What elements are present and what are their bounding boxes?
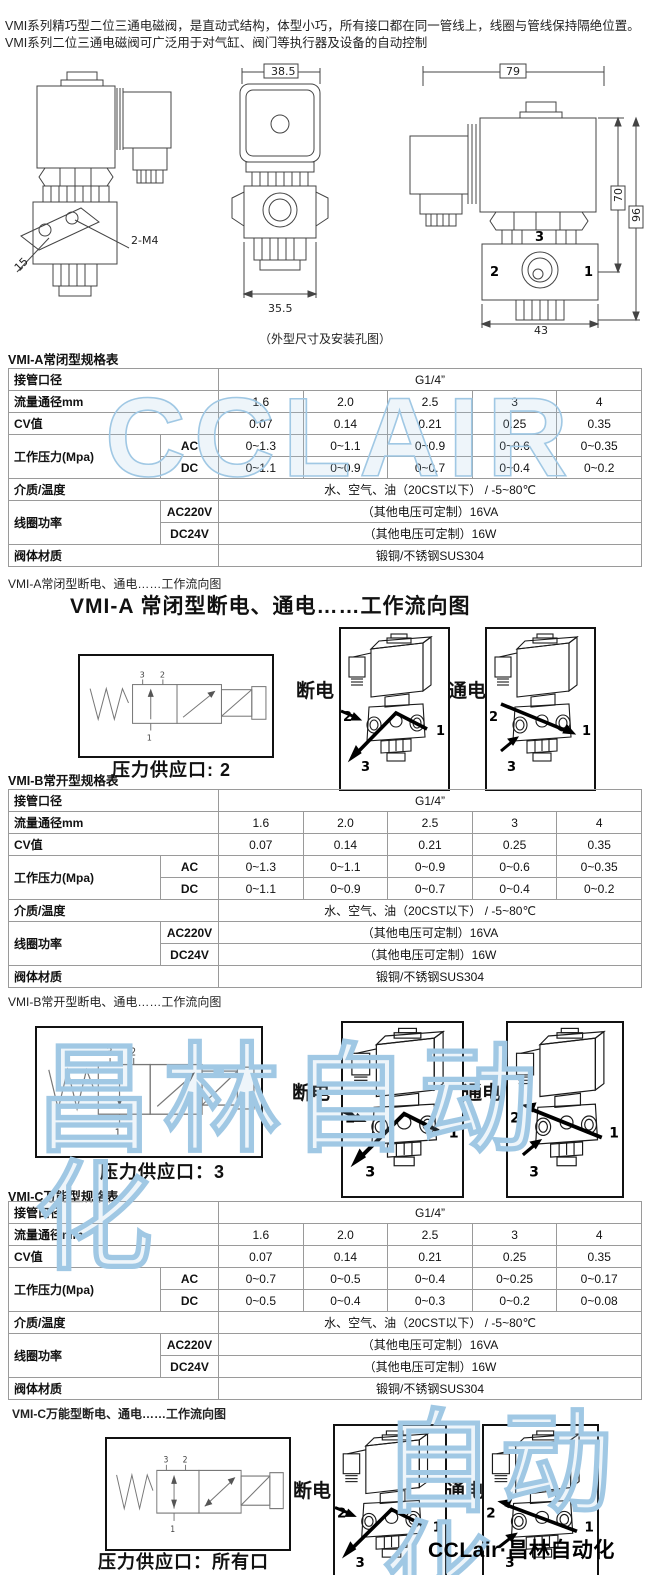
cell: 0~0.4 bbox=[303, 1290, 388, 1312]
cell: 0.21 bbox=[388, 834, 473, 856]
cell: 0~0.9 bbox=[388, 435, 473, 457]
cell: 2.5 bbox=[388, 391, 473, 413]
cell: 0~0.35 bbox=[557, 435, 642, 457]
cell: 0~0.6 bbox=[472, 435, 557, 457]
drawing-front-view: 38.5 35.5 bbox=[222, 58, 344, 330]
row-label: 接管口径 bbox=[9, 790, 219, 812]
cell: （其他电压可定制）16W bbox=[219, 944, 642, 966]
vmi-c-symbol-box: 3 2 1 bbox=[105, 1437, 291, 1551]
symbol-port-1: 1 bbox=[115, 1128, 121, 1140]
port-2-label: 2 bbox=[510, 1110, 520, 1126]
cell: 锻铜/不锈钢SUS304 bbox=[219, 1378, 642, 1400]
datasheet-page: VMI系列精巧型二位三通电磁阀，是直动式结构，体型小巧，所有接口都在同一管线上，… bbox=[0, 0, 650, 1575]
port-3-label: 3 bbox=[507, 760, 516, 775]
cell: 2.0 bbox=[303, 812, 388, 834]
port-3-label: 3 bbox=[535, 230, 544, 245]
cell: 2.5 bbox=[388, 1224, 473, 1246]
cell: 水、空气、油（20CST以下） / -5~80℃ bbox=[219, 1312, 642, 1334]
cell: 0~0.2 bbox=[472, 1290, 557, 1312]
cell: 0.25 bbox=[472, 413, 557, 435]
row-label: 线圈功率 bbox=[9, 1334, 161, 1378]
symbol-port-3: 3 bbox=[164, 1454, 169, 1465]
symbol-port-3: 3 bbox=[107, 1047, 113, 1059]
dim-70: 70 bbox=[612, 188, 625, 202]
symbol-port-2: 2 bbox=[130, 1047, 136, 1059]
cell: （其他电压可定制）16VA bbox=[219, 501, 642, 523]
vmi-a-state-off: 断电 bbox=[296, 676, 334, 703]
row-label: 线圈功率 bbox=[9, 501, 161, 545]
valve-picto: 2 1 3 bbox=[341, 629, 448, 789]
cell: 0~0.08 bbox=[557, 1290, 642, 1312]
port-1-label: 1 bbox=[584, 1521, 594, 1536]
vmi-b-state-on: 通电 bbox=[463, 1078, 501, 1105]
cell: 0~0.2 bbox=[557, 457, 642, 479]
vmi-b-supply-port: 压力供应口：3 bbox=[100, 1158, 225, 1184]
cell: 0.07 bbox=[219, 413, 304, 435]
row-label: 介质/温度 bbox=[9, 900, 219, 922]
cell: 0~0.4 bbox=[472, 878, 557, 900]
cell: 3 bbox=[472, 812, 557, 834]
row-label: 线圈功率 bbox=[9, 922, 161, 966]
cell: 0.14 bbox=[303, 834, 388, 856]
dim-38-5: 38.5 bbox=[271, 65, 296, 78]
cell: 0~0.9 bbox=[388, 856, 473, 878]
cell: 0.35 bbox=[557, 834, 642, 856]
vmi-b-title: VMI-B常开型规格表 bbox=[8, 770, 118, 789]
cell: 0~0.7 bbox=[219, 1268, 304, 1290]
row-label: 阀体材质 bbox=[9, 966, 219, 988]
row-label: 工作压力(Mpa) bbox=[9, 1268, 161, 1312]
row-label: 接管口径 bbox=[9, 1202, 219, 1224]
cell: 0.14 bbox=[303, 1246, 388, 1268]
cell: 0.35 bbox=[557, 413, 642, 435]
vmi-c-state-off: 断电 bbox=[293, 1476, 331, 1503]
sub-label: DC24V bbox=[161, 1356, 219, 1378]
vmi-c-state-on: 通电 bbox=[446, 1476, 484, 1503]
vmi-a-state-on: 通电 bbox=[448, 676, 486, 703]
row-label: CV值 bbox=[9, 413, 219, 435]
row-label: 工作压力(Mpa) bbox=[9, 435, 161, 479]
cell: （其他电压可定制）16VA bbox=[219, 1334, 642, 1356]
valve-symbol: 3 2 1 bbox=[107, 1439, 289, 1549]
brand-footer: CCLair·昌林自动化 bbox=[428, 1534, 615, 1564]
cell: 0.21 bbox=[388, 413, 473, 435]
vmi-a-symbol-box: 3 2 1 bbox=[78, 654, 274, 758]
sub-label: AC bbox=[161, 435, 219, 457]
cell: 0~1.1 bbox=[303, 435, 388, 457]
vmi-b-valve-energized: 2 1 3 bbox=[506, 1021, 624, 1198]
row-label: 接管口径 bbox=[9, 369, 219, 391]
drawing-side-view-mounting: 2-M4 15 bbox=[5, 58, 191, 326]
cell: 0.07 bbox=[219, 1246, 304, 1268]
cell: 2.5 bbox=[388, 812, 473, 834]
cell: 0~1.1 bbox=[219, 457, 304, 479]
valve-symbol: 3 2 1 bbox=[80, 656, 272, 756]
cell: 0~0.35 bbox=[557, 856, 642, 878]
port-1-label: 1 bbox=[584, 265, 593, 280]
symbol-port-3: 3 bbox=[140, 669, 145, 679]
port-2-label: 2 bbox=[490, 265, 499, 280]
cell: 0.07 bbox=[219, 834, 304, 856]
symbol-port-2: 2 bbox=[183, 1454, 188, 1465]
cell: G1/4” bbox=[219, 1202, 642, 1224]
row-label: 阀体材质 bbox=[9, 545, 219, 567]
cell: 0~1.1 bbox=[219, 878, 304, 900]
port-2-label: 2 bbox=[337, 1507, 346, 1522]
valve-picto: 2 1 3 bbox=[508, 1023, 622, 1196]
cell: 1.6 bbox=[219, 1224, 304, 1246]
row-label: 流量通径mm bbox=[9, 1224, 219, 1246]
cell: 0~0.5 bbox=[303, 1268, 388, 1290]
cell: 1.6 bbox=[219, 812, 304, 834]
port-1-label: 1 bbox=[609, 1126, 619, 1142]
row-label: 流量通径mm bbox=[9, 391, 219, 413]
cell: 锻铜/不锈钢SUS304 bbox=[219, 966, 642, 988]
vmi-b-state-off: 断电 bbox=[292, 1078, 330, 1105]
cell: 0.14 bbox=[303, 413, 388, 435]
cell: 2.0 bbox=[303, 391, 388, 413]
vmi-a-valve-energized: 2 1 3 bbox=[485, 627, 596, 791]
cell: 3 bbox=[472, 1224, 557, 1246]
cell: 0.25 bbox=[472, 1246, 557, 1268]
cell: 0.21 bbox=[388, 1246, 473, 1268]
vmi-a-flow-heading: VMI-A 常闭型断电、通电……工作流向图 bbox=[70, 590, 471, 620]
sub-label: DC24V bbox=[161, 523, 219, 545]
sub-label: AC220V bbox=[161, 922, 219, 944]
cell: 0~1.1 bbox=[303, 856, 388, 878]
vmi-b-flow-note: VMI-B常开型断电、通电……工作流向图 bbox=[8, 993, 221, 1010]
cell: （其他电压可定制）16W bbox=[219, 1356, 642, 1378]
port-2-label: 2 bbox=[486, 1507, 496, 1522]
port-1-label: 1 bbox=[436, 724, 445, 739]
port-3-label: 3 bbox=[365, 1165, 375, 1181]
vmi-a-title: VMI-A常闭型规格表 bbox=[8, 349, 118, 368]
port-1-label: 1 bbox=[433, 1520, 442, 1535]
intro-paragraph: VMI系列精巧型二位三通电磁阀，是直动式结构，体型小巧，所有接口都在同一管线上，… bbox=[5, 18, 647, 52]
row-label: 介质/温度 bbox=[9, 1312, 219, 1334]
valve-symbol: 3 2 1 bbox=[37, 1028, 261, 1156]
cell: （其他电压可定制）16VA bbox=[219, 922, 642, 944]
cell: 锻铜/不锈钢SUS304 bbox=[219, 545, 642, 567]
cell: G1/4” bbox=[219, 790, 642, 812]
valve-picto: 2 1 3 bbox=[343, 1023, 462, 1196]
sub-label: DC bbox=[161, 457, 219, 479]
sub-label: DC bbox=[161, 878, 219, 900]
dim-96: 96 bbox=[630, 208, 643, 222]
port-2-label: 2 bbox=[343, 710, 352, 725]
row-label: 阀体材质 bbox=[9, 1378, 219, 1400]
sub-label: AC bbox=[161, 1268, 219, 1290]
cell: 1.6 bbox=[219, 391, 304, 413]
port-1-label: 1 bbox=[449, 1126, 459, 1142]
cell: 0~0.6 bbox=[472, 856, 557, 878]
cell: 4 bbox=[557, 812, 642, 834]
dim-2-m4: 2-M4 bbox=[131, 234, 158, 247]
vmi-c-flow-note: VMI-C万能型断电、通电……工作流向图 bbox=[12, 1405, 226, 1422]
vmi-a-valve-deenergized: 2 1 3 bbox=[339, 627, 450, 791]
cell: 0~0.7 bbox=[388, 878, 473, 900]
sub-label: AC bbox=[161, 856, 219, 878]
row-label: 介质/温度 bbox=[9, 479, 219, 501]
sub-label: DC bbox=[161, 1290, 219, 1312]
sub-label: AC220V bbox=[161, 1334, 219, 1356]
vmi-c-spec-table: 接管口径 G1/4” 流量通径mm 1.6 2.0 2.5 3 4 CV值 0.… bbox=[8, 1201, 642, 1400]
cell: 0~0.5 bbox=[219, 1290, 304, 1312]
symbol-port-1: 1 bbox=[170, 1524, 175, 1535]
vmi-a-spec-table: 接管口径 G1/4” 流量通径mm 1.6 2.0 2.5 3 4 CV值 0.… bbox=[8, 368, 642, 567]
sub-label: DC24V bbox=[161, 944, 219, 966]
drawing-side-view-dims: 79 70 96 43 3 2 1 bbox=[368, 58, 648, 334]
cell: 0~0.9 bbox=[303, 878, 388, 900]
vmi-c-supply-port: 压力供应口：所有口 bbox=[98, 1548, 269, 1574]
row-label: CV值 bbox=[9, 834, 219, 856]
row-label: 工作压力(Mpa) bbox=[9, 856, 161, 900]
cell: 0~1.3 bbox=[219, 856, 304, 878]
port-3-label: 3 bbox=[529, 1164, 539, 1180]
drawings-caption: （外型尺寸及安装孔图） bbox=[0, 330, 650, 347]
cell: 0~0.7 bbox=[388, 457, 473, 479]
port-2-label: 2 bbox=[345, 1111, 355, 1127]
sub-label: AC220V bbox=[161, 501, 219, 523]
cell: 0~0.4 bbox=[388, 1268, 473, 1290]
dim-15: 15 bbox=[12, 255, 31, 274]
cell: 0~0.9 bbox=[303, 457, 388, 479]
dim-35-5: 35.5 bbox=[268, 302, 293, 315]
cell: 3 bbox=[472, 391, 557, 413]
cell: 0~0.17 bbox=[557, 1268, 642, 1290]
cell: 2.0 bbox=[303, 1224, 388, 1246]
cell: 0~0.4 bbox=[472, 457, 557, 479]
port-3-label: 3 bbox=[361, 760, 370, 775]
row-label: CV值 bbox=[9, 1246, 219, 1268]
cell: （其他电压可定制）16W bbox=[219, 523, 642, 545]
vmi-a-supply-port: 压力供应口: 2 bbox=[112, 756, 231, 782]
port-1-label: 1 bbox=[582, 724, 591, 739]
port-3-label: 3 bbox=[356, 1556, 365, 1571]
cell: 水、空气、油（20CST以下） / -5~80℃ bbox=[219, 900, 642, 922]
vmi-b-valve-deenergized: 2 1 3 bbox=[341, 1021, 464, 1198]
cell: 0.25 bbox=[472, 834, 557, 856]
vmi-b-spec-table: 接管口径 G1/4” 流量通径mm 1.6 2.0 2.5 3 4 CV值 0.… bbox=[8, 789, 642, 988]
cell: 4 bbox=[557, 1224, 642, 1246]
cell: 0.35 bbox=[557, 1246, 642, 1268]
cell: 0~1.3 bbox=[219, 435, 304, 457]
cell: 0~0.25 bbox=[472, 1268, 557, 1290]
symbol-port-2: 2 bbox=[160, 669, 165, 679]
row-label: 流量通径mm bbox=[9, 812, 219, 834]
port-2-label: 2 bbox=[489, 710, 498, 725]
cell: 0~0.3 bbox=[388, 1290, 473, 1312]
vmi-b-symbol-box: 3 2 1 bbox=[35, 1026, 263, 1158]
symbol-port-1: 1 bbox=[147, 733, 152, 743]
cell: G1/4” bbox=[219, 369, 642, 391]
dim-79: 79 bbox=[506, 65, 520, 78]
valve-picto: 2 1 3 bbox=[487, 629, 594, 789]
cell: 0~0.2 bbox=[557, 878, 642, 900]
cell: 4 bbox=[557, 391, 642, 413]
cell: 水、空气、油（20CST以下） / -5~80℃ bbox=[219, 479, 642, 501]
